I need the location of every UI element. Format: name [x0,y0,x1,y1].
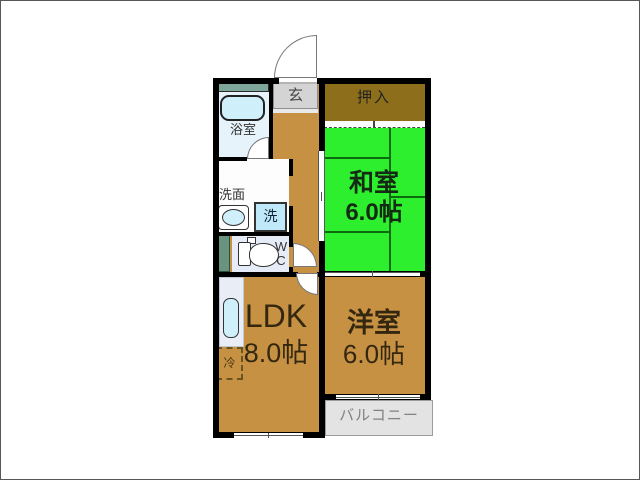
tatami-line [323,157,389,159]
wall-segment [289,206,293,247]
label-oshiire: 押入 [323,90,425,106]
label-yoshitsu-size: 6.0帖 [323,341,425,368]
wall-segment [317,78,431,84]
label-washitsu-name: 和室 [323,170,425,196]
wall-segment [289,159,293,176]
label-wc-w: W [273,240,289,254]
entrance-threshold [279,78,317,84]
genkan-step [273,109,318,113]
floor-plan-image: 玄 押入 和室 6.0帖 浴室 洗面 洗 W C 冷 LDK 8.0帖 洋室 6… [0,0,640,480]
wall-segment [425,78,431,400]
label-ldk-size: 8.0帖 [230,339,322,367]
label-washroom: 洗面 [219,188,257,202]
wall-segment [213,232,293,236]
wall-segment [213,157,247,161]
label-balcony: バルコニー [325,408,433,424]
window-tick [268,433,269,438]
wall-segment [213,272,293,277]
label-washitsu-size: 6.0帖 [323,200,425,225]
sliding-door-tick [321,192,322,201]
label-ldk-name: LDK [230,300,322,334]
tatami-line [323,231,389,233]
vanity-basin-icon [222,209,245,226]
label-yoshitsu-name: 洋室 [323,309,425,337]
bathtub-icon [220,95,265,121]
label-genkan: 玄 [273,88,318,104]
wall-segment [319,241,325,273]
window-tick [372,271,373,277]
fusuma-tick [373,121,375,128]
label-washer: 洗 [254,209,287,224]
label-bathroom: 浴室 [217,123,269,137]
window-tick [378,394,379,400]
label-wc-c: C [273,254,289,268]
door-arc-entrance [274,35,317,78]
